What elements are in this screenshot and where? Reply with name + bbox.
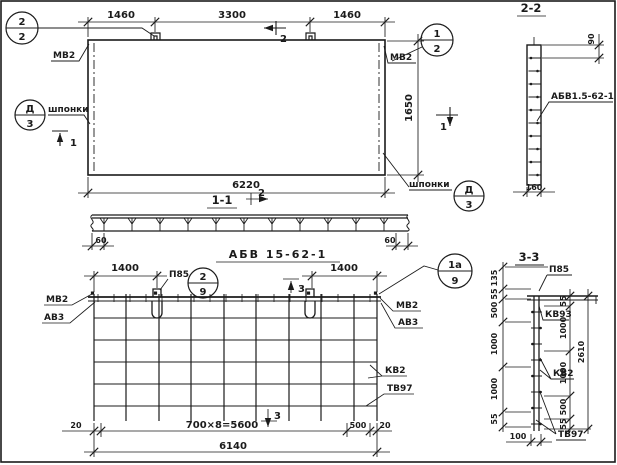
section-2-2 (513, 16, 613, 197)
callout-2-9-top: 2 (200, 272, 207, 283)
dim-2610: 2610 (577, 340, 586, 363)
dim-500-asm: 500 (350, 421, 367, 430)
lifting-hooks (151, 33, 315, 40)
section-1-1-ribs (100, 218, 388, 231)
panel-outline (88, 40, 385, 175)
label-abv15-62-1: АБВ1.5-62-1 (551, 92, 614, 102)
dim-1400-right: 1400 (330, 263, 358, 274)
dim-1460-left: 1460 (107, 10, 135, 21)
section-2-2-label-leader (537, 102, 613, 121)
dim-1650: 1650 (404, 94, 415, 122)
section-1-1-title: 1-1 (212, 193, 233, 207)
assembly-title: АБВ 15-62-1 (229, 248, 328, 261)
label-av3-right-asm: АВ3 (398, 318, 418, 328)
label-shponki-left: шпонки (48, 105, 89, 115)
label-mv2-left: МВ2 (53, 51, 75, 61)
mark-3-bottom: 3 (274, 411, 281, 422)
dim-55-left-top: 55 (490, 288, 499, 300)
dim-1000-left-2: 1000 (490, 377, 499, 400)
callout-d3-right-bottom: 3 (466, 200, 473, 211)
callout-1-2-top: 1 (434, 29, 441, 40)
section-3-3-edge-bar (534, 296, 539, 431)
dim-55-right-bottom: 55 (559, 418, 568, 430)
section-1-1-strip (92, 215, 408, 231)
dim-20-right: 20 (379, 421, 391, 430)
label-p85-s33: П85 (549, 265, 569, 275)
section-2-2-rungs (529, 58, 541, 175)
mark-1-left: 1 (70, 138, 77, 149)
key-edge-dashdot-lines (94, 43, 379, 172)
label-mv2-right: МВ2 (390, 53, 412, 63)
section-1-1-mark-2: 2 (258, 188, 265, 199)
mark-1-right: 1 (440, 122, 447, 133)
dim-1000-right-1: 1000 (559, 316, 568, 339)
lifting-loops-p85 (152, 289, 315, 318)
label-tv97-s33: ТВ97 (558, 430, 584, 440)
assembly-node-dots (91, 292, 377, 295)
section-2-2-texts: 2-2 90 160 АБВ1.5-62-1 (521, 1, 614, 192)
dim-500-left: 500 (490, 301, 499, 318)
dim-135: 135 (490, 269, 499, 286)
callout-d3-left-top: Д (26, 104, 35, 115)
callout-1-2-bottom: 2 (434, 44, 441, 55)
label-tv97-asm: ТВ97 (387, 384, 413, 394)
callout-2-9-bottom: 9 (200, 287, 207, 298)
callout-1a-9-bottom: 9 (452, 276, 459, 287)
label-mv2-left-asm: МВ2 (46, 295, 68, 305)
dim-700x8-5600: 700×8=5600 (186, 420, 258, 431)
section-2-2-title: 2-2 (521, 1, 542, 15)
label-shponki-right: шпонки (409, 180, 450, 190)
dim-60-right: 60 (384, 236, 396, 245)
callout-d3-right-top: Д (465, 185, 474, 196)
dim-160: 160 (526, 183, 543, 192)
mark-3-top: 3 (298, 284, 305, 295)
dim-1460-right: 1460 (333, 10, 361, 21)
dim-1000-right-2: 1000 (559, 361, 568, 384)
label-av3-left-asm: АВ3 (44, 313, 64, 323)
callout-2-2-top: 2 (19, 17, 26, 28)
section-3-3-title: 3-3 (519, 250, 540, 264)
dim-1000-left-1: 1000 (490, 332, 499, 355)
assembly-vertical-bars (94, 294, 377, 421)
assembly-texts: 1400 1400 П85 2 9 1а 9 МВ2 АВ3 МВ2 АВ3 К… (44, 260, 462, 452)
callout-2-2-bottom: 2 (19, 32, 26, 43)
dim-1400-left: 1400 (111, 263, 139, 274)
section-2-2-rebar-dots (530, 57, 539, 177)
dim-55-right-top: 55 (559, 295, 568, 307)
dim-100: 100 (510, 432, 527, 441)
dim-6140: 6140 (219, 441, 247, 452)
label-mv2-right-asm: МВ2 (396, 301, 418, 311)
section-2-2-element (527, 45, 541, 185)
dim-60-left: 60 (95, 236, 107, 245)
assembly-horizontal-bars (94, 318, 377, 406)
drawing-canvas: 1460 3300 1460 1650 6220 МВ2 МВ2 шпонки … (0, 0, 617, 465)
callout-1a-9-top: 1а (448, 260, 462, 271)
section-1-1-texts: 1-1 2 60 60 АБВ 15-62-1 (95, 188, 396, 261)
dim-3300: 3300 (218, 10, 246, 21)
section-3-3-leaders (515, 265, 586, 440)
plan-dimension-lines (78, 17, 424, 198)
mark-2-top: 2 (280, 34, 287, 45)
dim-6220: 6220 (232, 180, 260, 191)
dim-90: 90 (587, 33, 596, 45)
dim-20-left: 20 (70, 421, 82, 430)
dim-500-right: 500 (559, 398, 568, 415)
label-kv2-asm: КВ2 (385, 366, 405, 376)
label-p85: П85 (169, 270, 189, 280)
callout-d3-left-bottom: 3 (27, 119, 34, 130)
dim-55-left-bottom: 55 (490, 413, 499, 425)
section-3-3-texts: 3-3 П85 КВ93 КВ2 ТВ97 135 55 500 1000 10… (490, 250, 586, 441)
